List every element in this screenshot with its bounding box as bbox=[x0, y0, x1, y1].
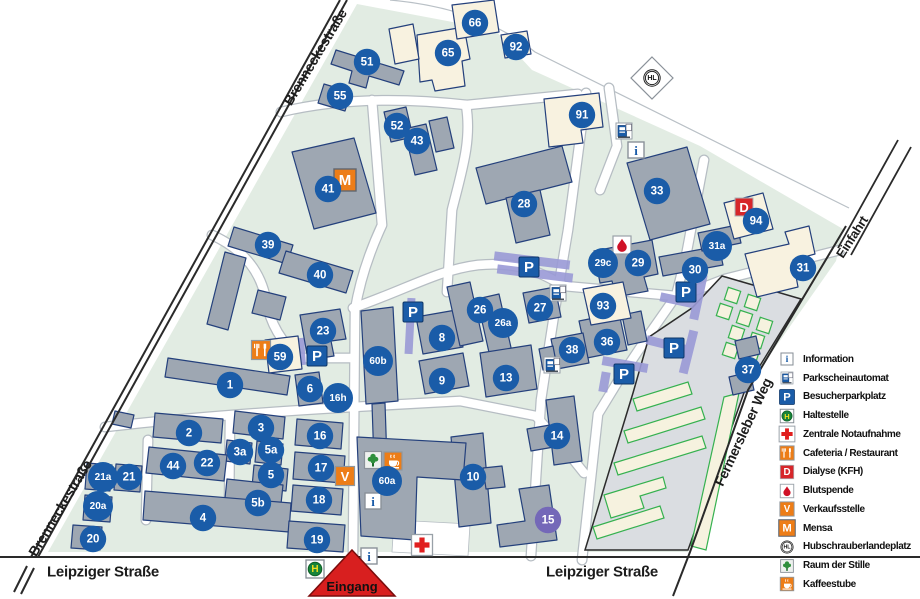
legend-item-parkplatz: PBesucherparkplatz bbox=[778, 388, 920, 407]
building-marker-65: 65 bbox=[435, 40, 461, 66]
building-marker-28: 28 bbox=[511, 191, 537, 217]
legend-item-mensa: MMensa bbox=[778, 519, 920, 538]
hubschrauber-icon: HL bbox=[778, 538, 796, 556]
svg-text:26: 26 bbox=[474, 305, 487, 317]
parkautomat-icon bbox=[550, 285, 566, 301]
building-marker-16: 16 bbox=[307, 423, 333, 449]
building-marker-9: 9 bbox=[429, 368, 455, 394]
svg-text:21: 21 bbox=[123, 472, 136, 484]
svg-text:29c: 29c bbox=[595, 258, 612, 269]
building-marker-22: 22 bbox=[194, 450, 220, 476]
legend-item-label: Besucherparkplatz bbox=[803, 391, 886, 402]
building-marker-18: 18 bbox=[306, 487, 332, 513]
legend-item-label: Kaffeestube bbox=[803, 579, 856, 590]
svg-text:41: 41 bbox=[322, 184, 335, 196]
svg-text:5b: 5b bbox=[251, 498, 264, 510]
building-marker-20a: 20a bbox=[83, 491, 113, 521]
haltestelle-icon: H bbox=[306, 560, 324, 578]
building-marker-16h: 16h bbox=[323, 383, 353, 413]
svg-text:20: 20 bbox=[87, 534, 100, 546]
notaufnahme-icon bbox=[778, 425, 796, 443]
mensa-icon: M bbox=[778, 519, 796, 537]
building-marker-51: 51 bbox=[354, 49, 380, 75]
svg-text:P: P bbox=[408, 304, 418, 321]
legend-item-blutspende: Blutspende bbox=[778, 481, 920, 500]
building-marker-27: 27 bbox=[527, 295, 553, 321]
svg-text:5: 5 bbox=[268, 470, 275, 482]
legend-item-label: Verkaufsstelle bbox=[803, 504, 865, 515]
legend-item-label: Information bbox=[803, 354, 854, 365]
building-marker-44: 44 bbox=[160, 453, 186, 479]
building-marker-5: 5 bbox=[258, 462, 284, 488]
building-marker-6: 6 bbox=[297, 376, 323, 402]
building-marker-43: 43 bbox=[404, 128, 430, 154]
svg-text:18: 18 bbox=[313, 495, 326, 507]
street-label: Leipziger Straße bbox=[546, 564, 658, 581]
svg-text:39: 39 bbox=[262, 240, 275, 252]
building-marker-33: 33 bbox=[644, 178, 670, 204]
building-marker-31a: 31a bbox=[702, 231, 732, 261]
legend-item-dialyse: DDialyse (KFH) bbox=[778, 463, 920, 482]
svg-text:65: 65 bbox=[442, 48, 455, 60]
svg-text:91: 91 bbox=[576, 110, 589, 122]
parkplatz-icon: P bbox=[676, 282, 696, 302]
svg-text:P: P bbox=[681, 284, 691, 301]
verkauf-icon: V bbox=[778, 500, 796, 518]
svg-text:H: H bbox=[784, 412, 789, 421]
svg-text:60a: 60a bbox=[379, 476, 396, 487]
parkplatz-icon: P bbox=[307, 346, 327, 366]
building-marker-40: 40 bbox=[307, 262, 333, 288]
svg-text:14: 14 bbox=[551, 431, 564, 443]
svg-text:92: 92 bbox=[510, 42, 523, 54]
building-marker-26a: 26a bbox=[488, 308, 518, 338]
svg-text:10: 10 bbox=[467, 472, 480, 484]
parkplatz-icon: P bbox=[778, 388, 796, 406]
building-marker-39: 39 bbox=[255, 232, 281, 258]
svg-text:38: 38 bbox=[566, 345, 579, 357]
kaffeestube-icon bbox=[778, 575, 796, 593]
svg-text:2: 2 bbox=[186, 428, 192, 440]
legend-item-label: Blutspende bbox=[803, 485, 853, 496]
building-marker-93: 93 bbox=[590, 293, 616, 319]
legend-item-verkauf: VVerkaufsstelle bbox=[778, 500, 920, 519]
info-icon: i bbox=[365, 493, 381, 509]
svg-text:3a: 3a bbox=[234, 447, 247, 459]
legend-item-label: Raum der Stille bbox=[803, 560, 870, 571]
svg-text:9: 9 bbox=[439, 376, 445, 388]
svg-text:1: 1 bbox=[227, 380, 234, 392]
svg-text:17: 17 bbox=[315, 463, 328, 475]
parkplatz-icon: P bbox=[519, 257, 539, 277]
legend-item-notaufnahme: Zentrale Notaufnahme bbox=[778, 425, 920, 444]
parkautomat-icon bbox=[616, 123, 632, 139]
svg-text:i: i bbox=[786, 354, 789, 365]
svg-text:30: 30 bbox=[689, 265, 702, 277]
info-icon: i bbox=[628, 142, 644, 158]
parkautomat-icon bbox=[778, 369, 796, 387]
svg-text:93: 93 bbox=[597, 301, 610, 313]
building-marker-1: 1 bbox=[217, 372, 243, 398]
street-label: Leipziger Straße bbox=[47, 564, 159, 581]
svg-text:P: P bbox=[783, 391, 791, 403]
building-marker-91: 91 bbox=[569, 102, 595, 128]
svg-text:16h: 16h bbox=[329, 393, 346, 404]
svg-text:P: P bbox=[312, 348, 322, 365]
building-marker-4: 4 bbox=[190, 505, 216, 531]
building-marker-21a: 21a bbox=[88, 462, 118, 492]
blutspende-icon bbox=[613, 236, 631, 254]
svg-text:40: 40 bbox=[314, 270, 327, 282]
building-marker-92: 92 bbox=[503, 34, 529, 60]
building-marker-55: 55 bbox=[327, 83, 353, 109]
svg-text:HL: HL bbox=[784, 544, 792, 550]
dialyse-icon: D bbox=[778, 463, 796, 481]
svg-text:52: 52 bbox=[391, 121, 404, 133]
haltestelle-icon: H bbox=[778, 407, 796, 425]
svg-text:66: 66 bbox=[469, 18, 482, 30]
svg-text:22: 22 bbox=[201, 458, 214, 470]
building-marker-30: 30 bbox=[682, 257, 708, 283]
legend-item-parkautomat: Parkscheinautomat bbox=[778, 369, 920, 388]
parkplatz-icon: P bbox=[403, 302, 423, 322]
legend-item-label: Haltestelle bbox=[803, 410, 849, 421]
svg-text:4: 4 bbox=[200, 513, 207, 525]
building-marker-5b: 5b bbox=[245, 490, 271, 516]
svg-text:20a: 20a bbox=[90, 501, 107, 512]
building-marker-13: 13 bbox=[493, 365, 519, 391]
svg-text:P: P bbox=[619, 366, 629, 383]
svg-text:27: 27 bbox=[534, 303, 547, 315]
legend-item-cafeteria: Cafeteria / Restaurant bbox=[778, 444, 920, 463]
legend-item-label: Zentrale Notaufnahme bbox=[803, 429, 901, 440]
parkautomat-icon bbox=[544, 357, 560, 373]
building-marker-20: 20 bbox=[80, 526, 106, 552]
verkauf-icon: V bbox=[336, 467, 355, 486]
svg-text:37: 37 bbox=[742, 365, 755, 377]
svg-text:44: 44 bbox=[167, 461, 180, 473]
svg-text:55: 55 bbox=[334, 91, 347, 103]
building-marker-3a: 3a bbox=[227, 439, 253, 465]
svg-text:5a: 5a bbox=[265, 445, 278, 457]
svg-text:P: P bbox=[524, 259, 534, 276]
building-marker-5a: 5a bbox=[258, 437, 284, 463]
svg-text:28: 28 bbox=[518, 199, 531, 211]
legend-item-label: Cafeteria / Restaurant bbox=[803, 448, 898, 459]
blutspende-icon bbox=[778, 482, 796, 500]
building-marker-21: 21 bbox=[116, 464, 142, 490]
building-marker-29c: 29c bbox=[588, 248, 618, 278]
svg-text:33: 33 bbox=[651, 186, 664, 198]
legend-item-raum-stille: Raum der Stille bbox=[778, 556, 920, 575]
building-marker-29: 29 bbox=[625, 250, 651, 276]
building-marker-37: 37 bbox=[735, 357, 761, 383]
hubschrauber-icon: HL bbox=[631, 57, 673, 99]
svg-text:i: i bbox=[367, 549, 371, 564]
building-marker-60b: 60b bbox=[363, 346, 393, 376]
svg-text:21a: 21a bbox=[95, 472, 112, 483]
svg-text:8: 8 bbox=[439, 333, 446, 345]
building-marker-2: 2 bbox=[176, 420, 202, 446]
building-marker-31: 31 bbox=[790, 255, 816, 281]
building-marker-38: 38 bbox=[559, 337, 585, 363]
legend: iInformationParkscheinautomatPBesucherpa… bbox=[778, 350, 920, 594]
legend-item-label: Dialyse (KFH) bbox=[803, 466, 863, 477]
parkplatz-icon: P bbox=[664, 338, 684, 358]
notaufnahme-icon bbox=[412, 535, 433, 556]
svg-text:i: i bbox=[634, 143, 638, 158]
raum-stille-icon bbox=[778, 557, 796, 575]
svg-text:M: M bbox=[782, 523, 791, 535]
svg-text:36: 36 bbox=[601, 337, 614, 349]
svg-text:51: 51 bbox=[361, 57, 374, 69]
parkplatz-icon: P bbox=[614, 364, 634, 384]
svg-text:60b: 60b bbox=[369, 356, 386, 367]
svg-text:13: 13 bbox=[500, 373, 513, 385]
svg-text:19: 19 bbox=[311, 535, 324, 547]
svg-text:V: V bbox=[784, 504, 791, 515]
legend-item-hubschrauber: HLHubschrauberlandeplatz bbox=[778, 538, 920, 557]
building-marker-60a: 60a bbox=[372, 466, 402, 496]
svg-text:D: D bbox=[783, 467, 790, 478]
building-marker-23: 23 bbox=[310, 318, 336, 344]
svg-text:29: 29 bbox=[632, 258, 645, 270]
legend-item-label: Mensa bbox=[803, 523, 832, 534]
svg-text:V: V bbox=[341, 469, 350, 484]
building-marker-66: 66 bbox=[462, 10, 488, 36]
svg-text:15: 15 bbox=[542, 515, 555, 527]
legend-item-label: Hubschrauberlandeplatz bbox=[803, 541, 911, 552]
svg-text:31: 31 bbox=[797, 263, 810, 275]
svg-text:31a: 31a bbox=[709, 241, 726, 252]
info-icon: i bbox=[778, 350, 796, 368]
svg-text:26a: 26a bbox=[495, 318, 512, 329]
svg-text:H: H bbox=[311, 564, 318, 575]
svg-text:6: 6 bbox=[307, 384, 313, 396]
legend-item-info: iInformation bbox=[778, 350, 920, 369]
raum-stille-icon bbox=[365, 452, 382, 469]
building-marker-8: 8 bbox=[429, 325, 455, 351]
svg-text:HL: HL bbox=[647, 75, 657, 82]
building-marker-14: 14 bbox=[544, 423, 570, 449]
campus-map-page: BrenneckestraßeBrenneckestraßeLeipziger … bbox=[0, 0, 920, 599]
svg-text:16: 16 bbox=[314, 431, 327, 443]
legend-item-label: Parkscheinautomat bbox=[803, 373, 888, 384]
svg-text:43: 43 bbox=[411, 136, 424, 148]
cafeteria-icon bbox=[778, 444, 796, 462]
svg-text:3: 3 bbox=[258, 423, 264, 435]
building-marker-17: 17 bbox=[308, 455, 334, 481]
entrance-label: Eingang bbox=[326, 579, 377, 594]
building-marker-59: 59 bbox=[267, 344, 293, 370]
svg-text:94: 94 bbox=[750, 216, 763, 228]
svg-text:i: i bbox=[371, 494, 375, 509]
building-marker-15: 15 bbox=[535, 507, 561, 533]
legend-item-haltestelle: HHaltestelle bbox=[778, 406, 920, 425]
svg-text:23: 23 bbox=[317, 326, 330, 338]
legend-item-kaffeestube: Kaffeestube bbox=[778, 575, 920, 594]
building-marker-41: 41 bbox=[315, 176, 341, 202]
svg-text:59: 59 bbox=[274, 352, 287, 364]
building-marker-10: 10 bbox=[460, 464, 486, 490]
building-marker-36: 36 bbox=[594, 329, 620, 355]
building-marker-94: 94 bbox=[743, 208, 769, 234]
building-marker-19: 19 bbox=[304, 527, 330, 553]
svg-text:P: P bbox=[669, 340, 679, 357]
